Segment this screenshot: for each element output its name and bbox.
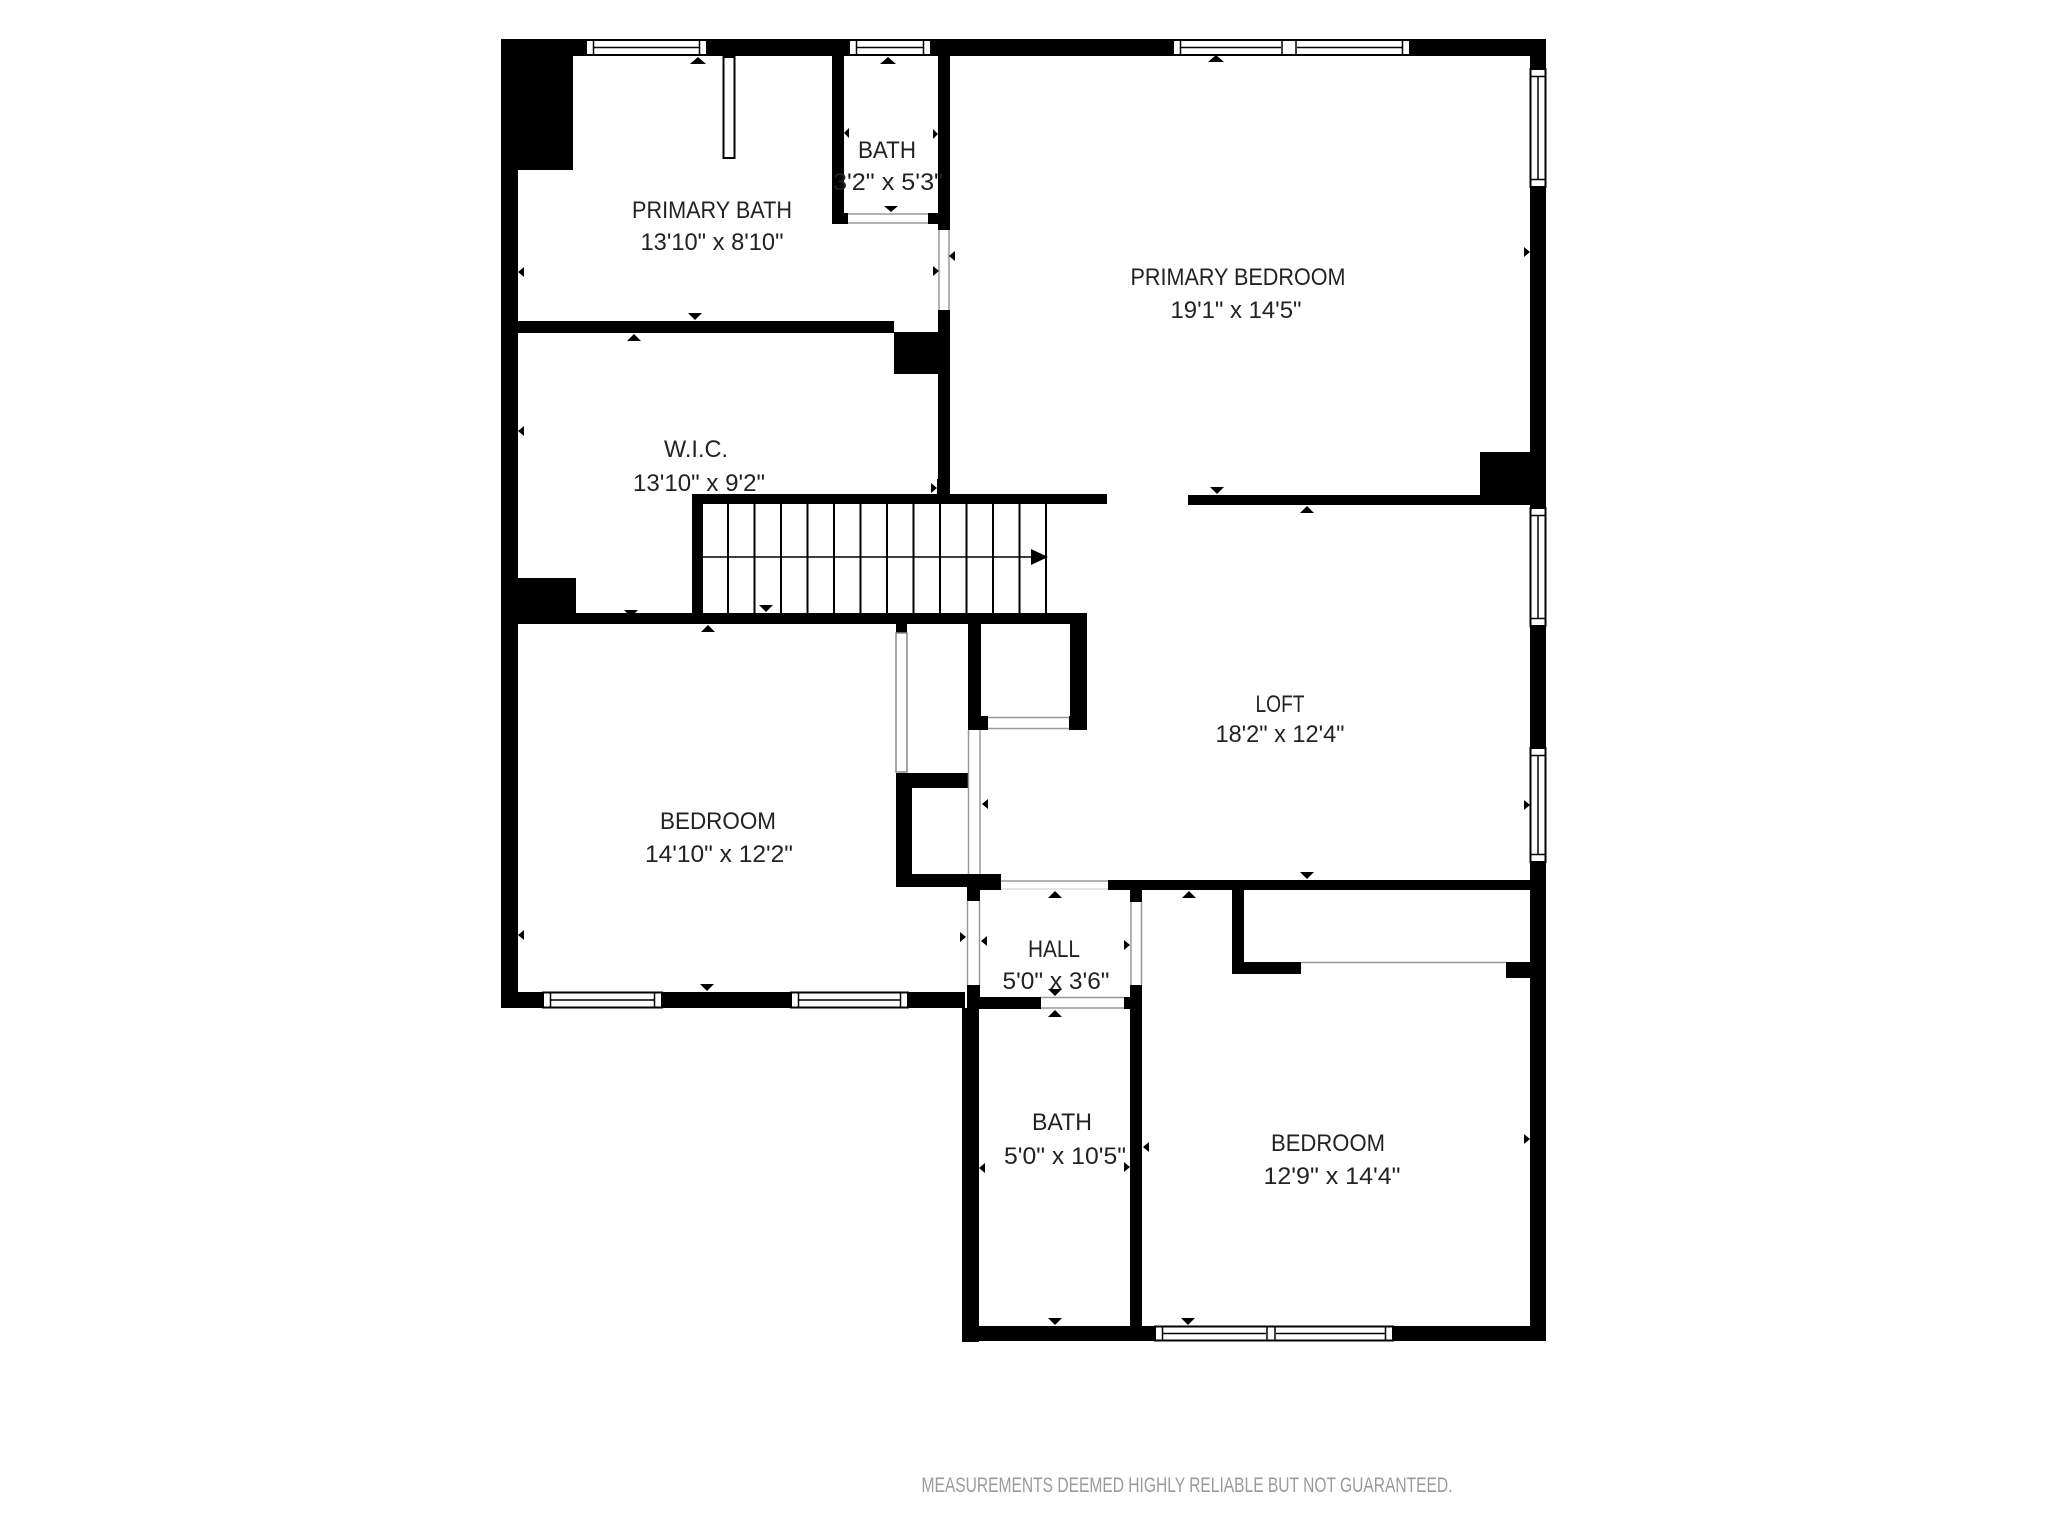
- svg-text:14'10" x 12'2": 14'10" x 12'2": [645, 841, 793, 868]
- svg-text:BATH: BATH: [1032, 1109, 1092, 1136]
- svg-text:BEDROOM: BEDROOM: [1271, 1130, 1385, 1157]
- svg-text:BATH: BATH: [858, 137, 916, 164]
- svg-text:MEASUREMENTS DEEMED HIGHLY REL: MEASUREMENTS DEEMED HIGHLY RELIABLE BUT …: [922, 1474, 1453, 1497]
- svg-text:19'1" x 14'5": 19'1" x 14'5": [1171, 297, 1302, 324]
- svg-text:HALL: HALL: [1028, 936, 1080, 963]
- svg-text:13'10" x 8'10": 13'10" x 8'10": [641, 229, 784, 256]
- svg-text:PRIMARY BEDROOM: PRIMARY BEDROOM: [1131, 264, 1346, 291]
- svg-text:5'0" x 3'6": 5'0" x 3'6": [1003, 968, 1110, 995]
- svg-text:3'2" x 5'3": 3'2" x 5'3": [833, 169, 943, 196]
- svg-text:LOFT: LOFT: [1256, 691, 1305, 718]
- svg-text:W.I.C.: W.I.C.: [664, 436, 728, 463]
- svg-text:5'0" x 10'5": 5'0" x 10'5": [1004, 1143, 1126, 1170]
- svg-text:12'9" x 14'4": 12'9" x 14'4": [1264, 1163, 1401, 1190]
- svg-text:18'2" x 12'4": 18'2" x 12'4": [1216, 721, 1345, 748]
- svg-text:PRIMARY BATH: PRIMARY BATH: [632, 197, 792, 224]
- svg-text:13'10" x 9'2": 13'10" x 9'2": [633, 470, 765, 497]
- svg-text:BEDROOM: BEDROOM: [660, 808, 776, 835]
